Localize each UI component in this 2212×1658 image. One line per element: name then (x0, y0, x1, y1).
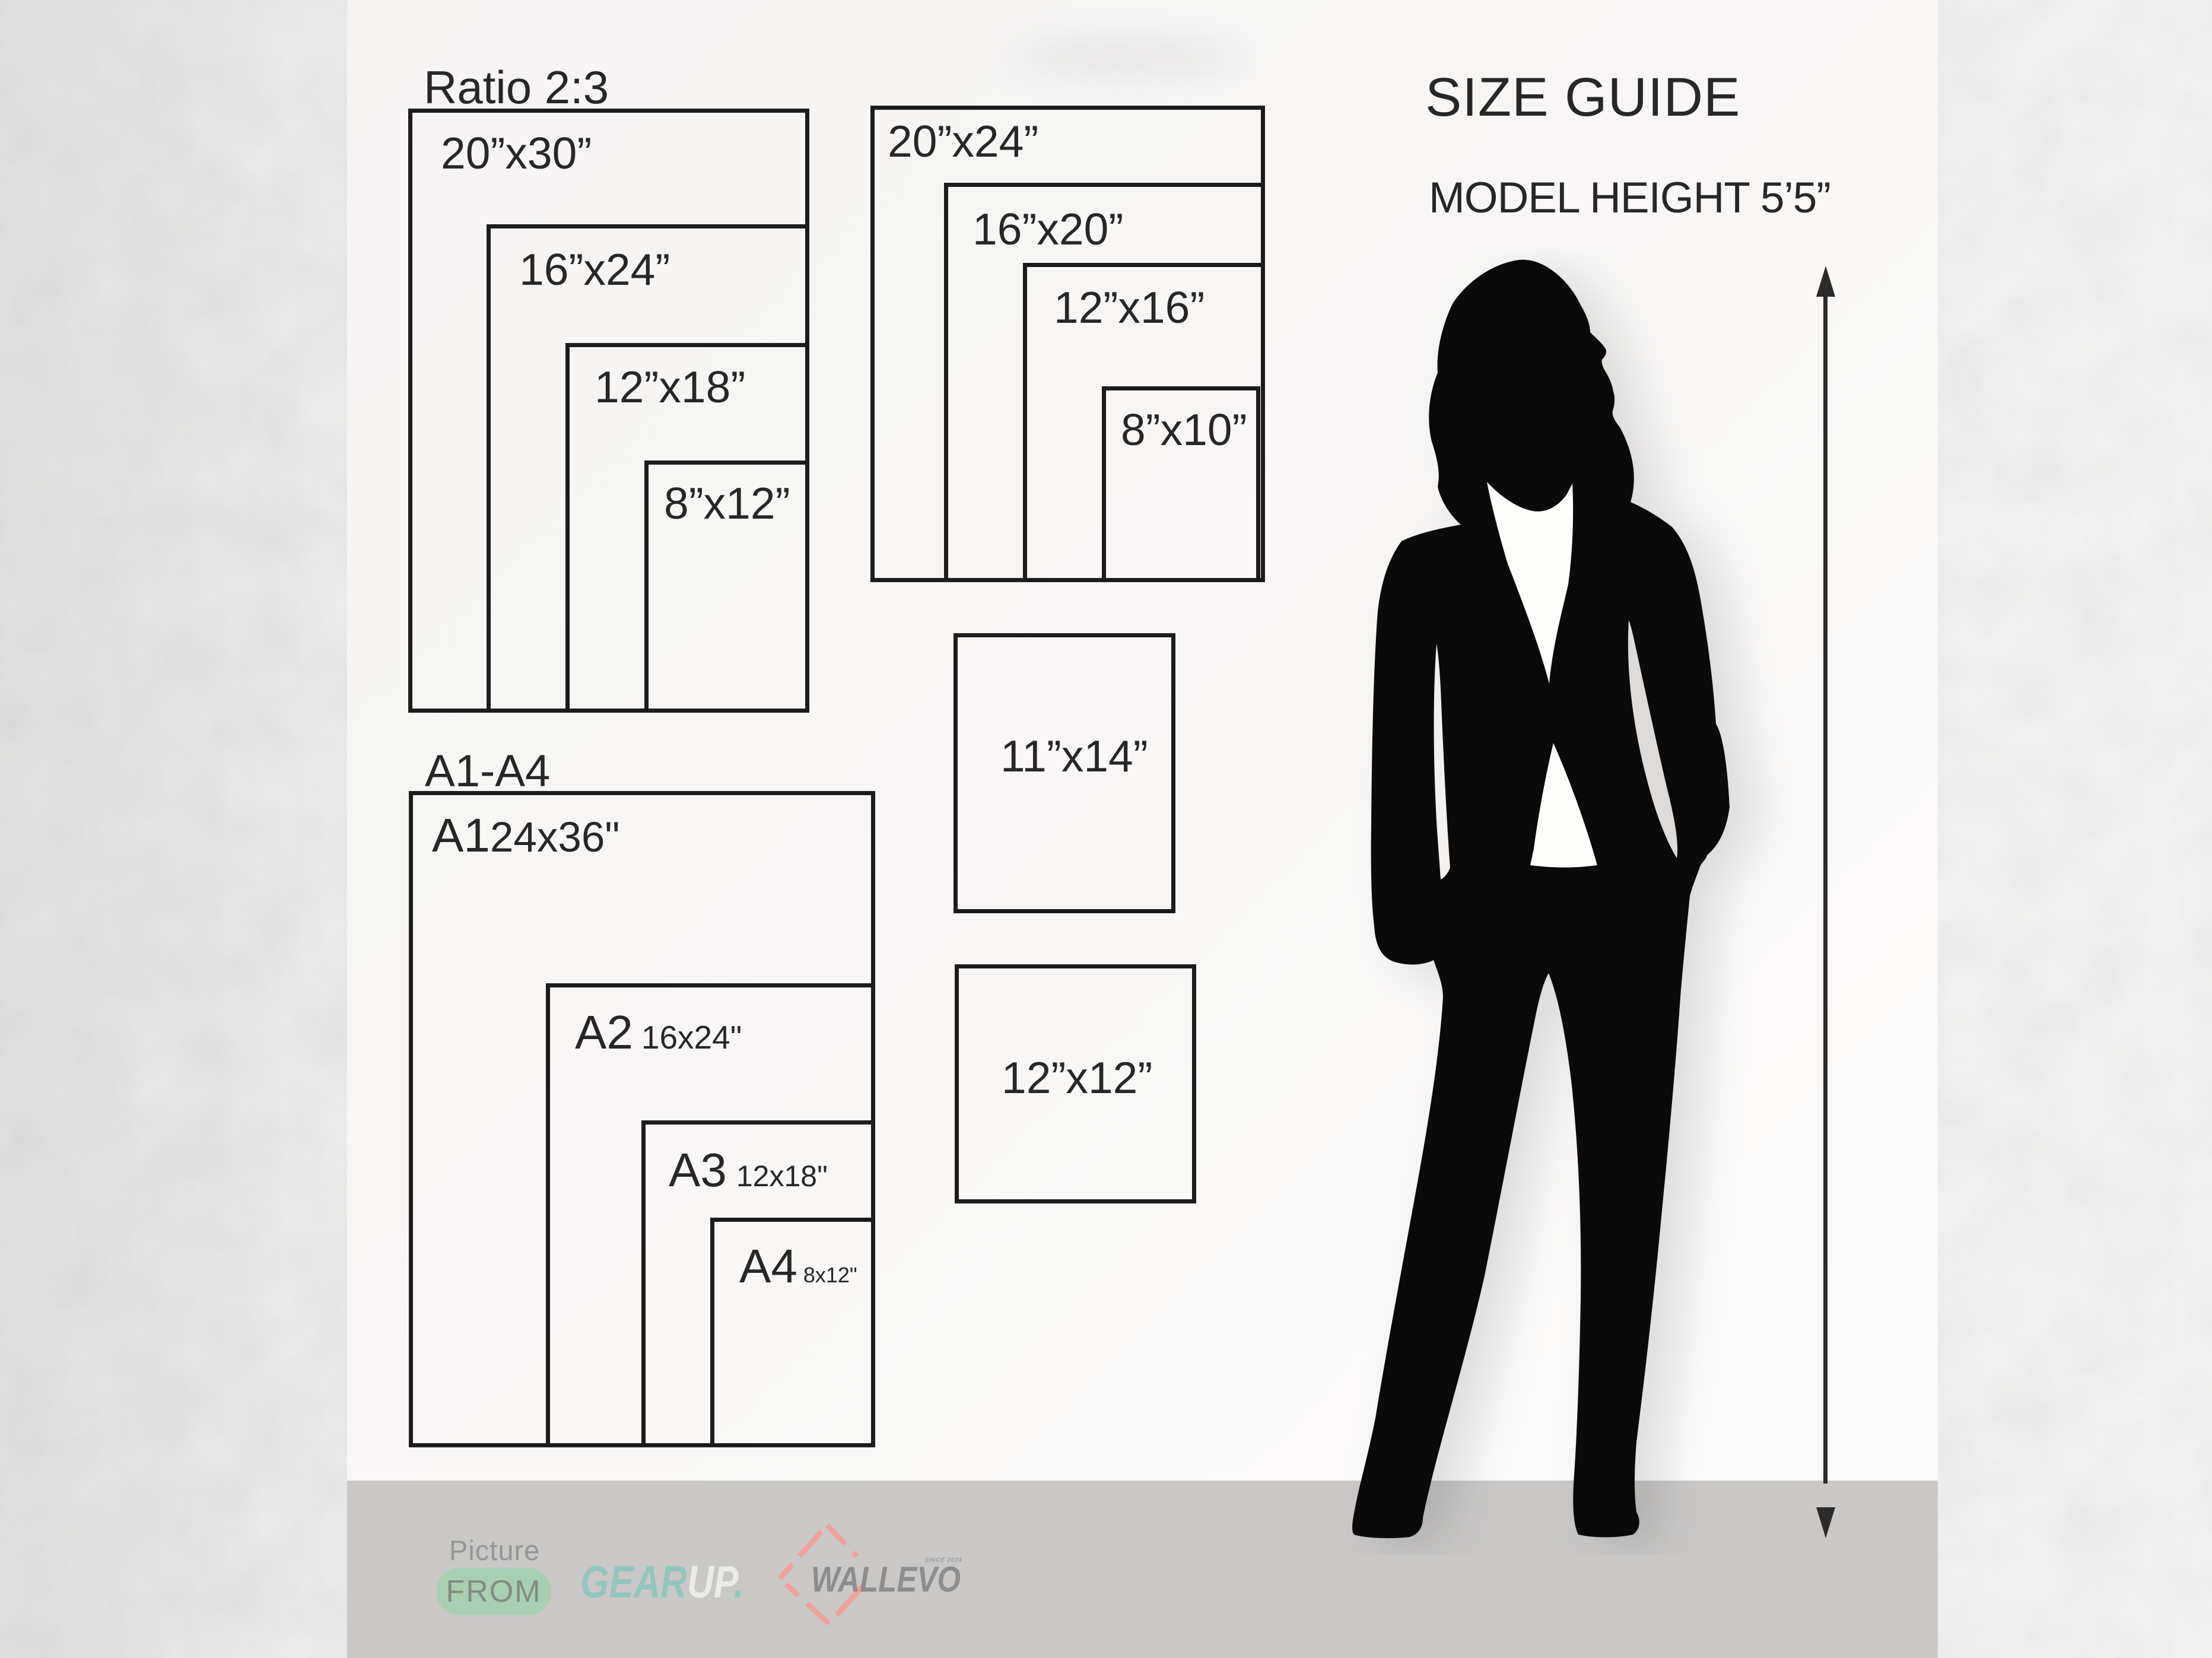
svg-text:WALLEVO: WALLEVO (811, 1559, 961, 1599)
